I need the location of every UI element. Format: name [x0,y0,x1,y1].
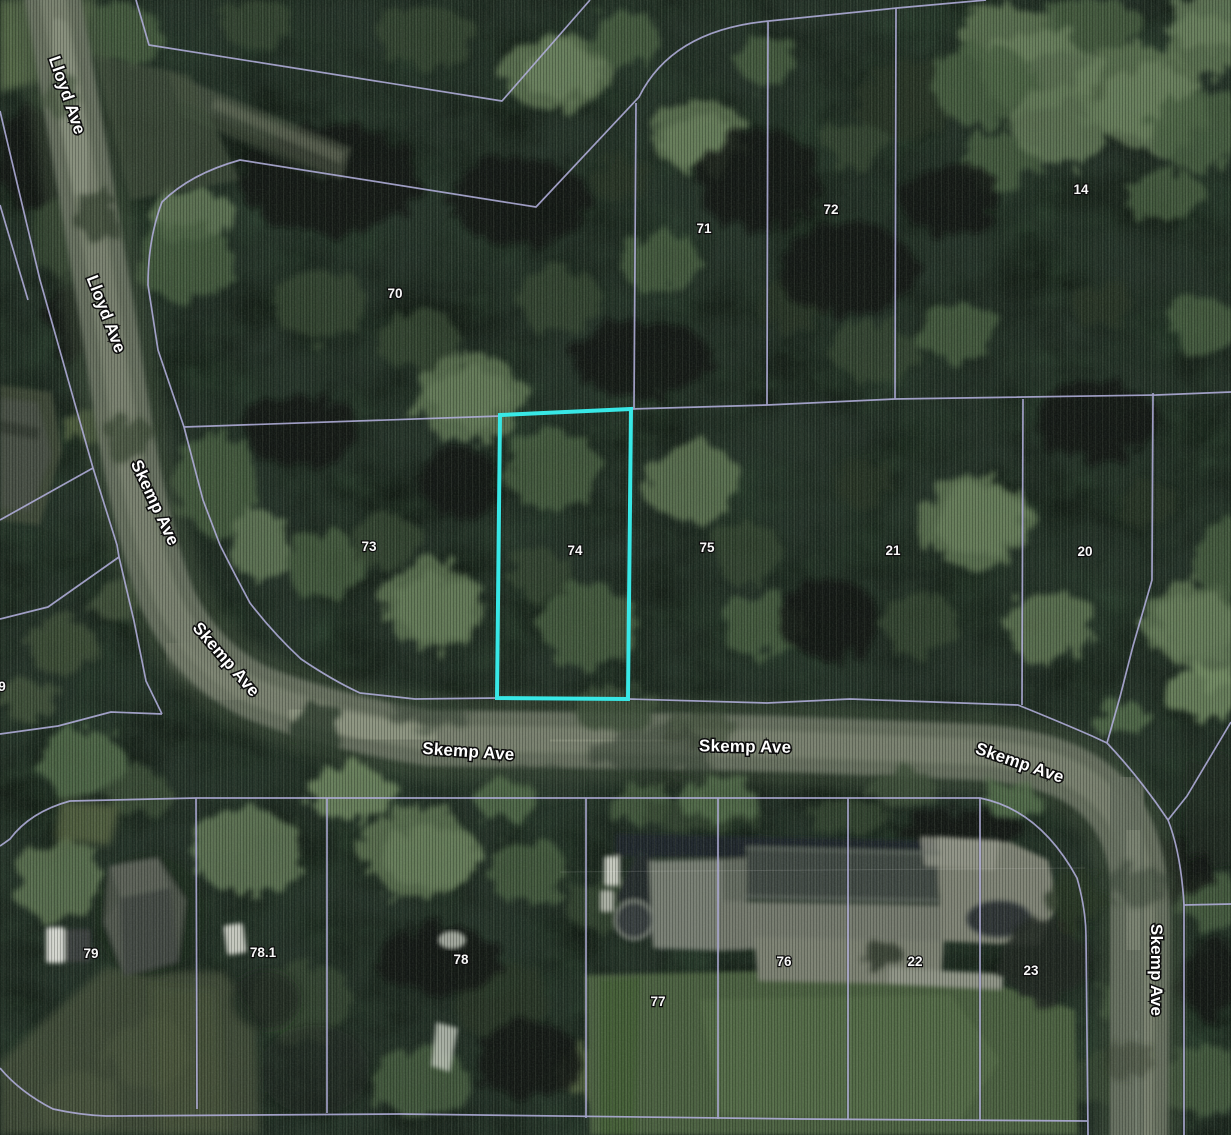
svg-text:21: 21 [885,543,901,558]
svg-text:71: 71 [696,221,712,236]
svg-text:74: 74 [567,543,583,558]
svg-text:73: 73 [361,539,377,554]
svg-text:79: 79 [83,946,98,961]
svg-text:78: 78 [453,952,469,967]
svg-text:9: 9 [0,679,6,694]
svg-text:22: 22 [907,954,922,969]
svg-text:72: 72 [823,202,838,217]
svg-text:20: 20 [1077,544,1092,559]
svg-text:Skemp Ave: Skemp Ave [699,736,792,757]
svg-text:23: 23 [1023,963,1039,978]
svg-text:77: 77 [650,994,665,1009]
svg-text:70: 70 [387,286,402,301]
svg-text:76: 76 [776,954,792,969]
svg-text:14: 14 [1073,182,1089,197]
svg-text:78.1: 78.1 [250,945,277,960]
svg-text:Skemp Ave: Skemp Ave [1147,924,1166,1016]
svg-text:75: 75 [699,540,715,555]
